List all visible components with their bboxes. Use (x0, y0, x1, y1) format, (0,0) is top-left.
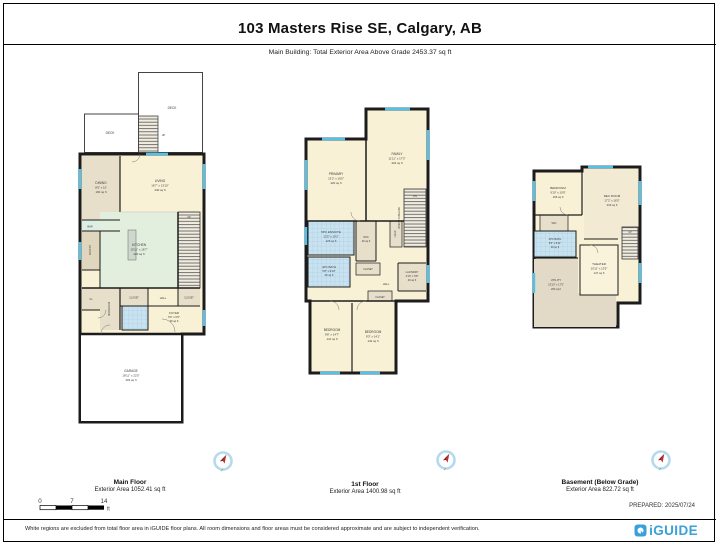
family-name: FAMILY (391, 152, 403, 156)
bath-area: 46 sq ft (325, 273, 334, 277)
deck-left-label: DECK (106, 131, 116, 135)
stairs-up-label: UP (628, 231, 632, 234)
kitchen-area: 220 sq ft (133, 252, 144, 256)
primary-name: PRIMARY (329, 172, 344, 176)
primary-dims: 13'2" x 16'5" (328, 177, 344, 181)
floor-name: Main Floor (40, 479, 220, 487)
prepared-date: PREPARED: 2025/07/24 (629, 503, 695, 509)
bedroom-b-area: 142 sq ft (367, 339, 378, 343)
floor-name: 1st Floor (275, 481, 455, 489)
open-to-below-label: OPEN TO BELOW (397, 207, 401, 229)
floorplan-1st-floor: PRIMARY 13'2" x 16'5" 220 sq ft FAMILY 1… (300, 105, 432, 412)
utility-name: UTILITY (551, 278, 562, 282)
wic-name: WIC (363, 235, 368, 239)
iguide-logo-icon (634, 524, 647, 537)
dining-dims: 8'6" x 10' (95, 186, 107, 190)
scale-tick-0: 0 (38, 498, 42, 505)
bedroom-area: 106 sq ft (553, 195, 564, 199)
stairs-dn-label: DN (413, 194, 417, 198)
laundry-area: 40 sq ft (408, 278, 417, 282)
scale-tick-7: 7 (70, 498, 74, 505)
bedroom-dims: 9'10" x 10'9" (550, 191, 565, 195)
linen-label: LINEN (394, 230, 397, 237)
page-subtitle: Main Building: Total Exterior Area Above… (0, 49, 720, 56)
deck-top-label: DECK (168, 106, 178, 110)
theater-name: THEATER (592, 262, 607, 266)
theater-dims: 10'11" x 13'5" (591, 267, 608, 271)
utility-area: 263 sq ft (551, 287, 561, 291)
primary-area: 220 sq ft (330, 181, 341, 185)
bedroom-a-dims: 9'8" x 14'7" (325, 333, 339, 337)
ensuite-name: 5PC ENSUITE (321, 230, 341, 234)
bath-area: 49 sq ft (551, 246, 560, 249)
iguide-logo-text: iGUIDE (649, 523, 698, 538)
bedroom-a-area: 141 sq ft (326, 337, 337, 341)
kitchen-name: KITCHEN (132, 243, 147, 247)
rec-name: REC ROOM (604, 194, 621, 198)
floor-area: Exterior Area 822.72 sq ft (510, 487, 690, 495)
iguide-logo: iGUIDE (634, 523, 698, 538)
living-area: 240 sq ft (154, 188, 165, 192)
foyer-name: FOYER (169, 311, 179, 315)
ensuite-area: 126 sq ft (326, 239, 337, 243)
closet-b-label: CLOSET (184, 297, 194, 300)
garage-area: 402 sq ft (125, 378, 136, 382)
closet-a-label: CLOSET (129, 297, 139, 300)
deck-top: DECK UP (139, 73, 203, 153)
caption-main-floor: Main Floor Exterior Area 1052.41 sq ft (40, 479, 220, 495)
laundry-dims: 4'10" x 5'8" (406, 274, 419, 278)
bath-name: 4PC BATH (549, 237, 562, 241)
bath-name: 4PC BATH (322, 265, 336, 269)
compass-icon (649, 448, 673, 472)
closet-b-label: CLOSET (375, 296, 385, 299)
wic-area: 49 sq ft (362, 239, 371, 243)
kitchen-dims: 15'11" x 16'7" (130, 248, 147, 252)
stairs-main (178, 212, 200, 288)
stairs-up-label: UP (187, 215, 191, 219)
page-title: 103 Masters Rise SE, Calgary, AB (0, 20, 720, 37)
garage-dims: 18'11" x 22'5" (122, 374, 139, 378)
floorplan-basement: BEDROOM 9'10" x 10'9" 106 sq ft REC ROOM… (528, 163, 652, 338)
ensuite-dims: 12'5" x 10'2" (323, 235, 338, 239)
theater-area: 147 sq ft (594, 271, 605, 275)
wic-label: WIC (551, 221, 556, 225)
deck-left: DECK (85, 114, 139, 153)
hall-label: HALL (383, 282, 390, 286)
bedroom-b-dims: 9'3" x 14'1" (366, 335, 380, 339)
room-bath-2pc (122, 306, 148, 330)
living-name: LIVING (155, 179, 166, 183)
floorplan-main-floor: DECK UP DECK (76, 64, 208, 426)
bedroom-b-name: BEDROOM (365, 330, 382, 334)
family-dims: 11'11" x 17'3" (388, 157, 405, 161)
rec-dims: 17'2" x 16'5" (604, 199, 619, 203)
scale-unit: ft (107, 507, 110, 513)
floorplan-page: 103 Masters Rise SE, Calgary, AB Main Bu… (0, 0, 720, 557)
family-area: 202 sq ft (391, 161, 402, 165)
foyer-area: 36 sq ft (170, 319, 179, 323)
dining-name: DINING (95, 181, 107, 185)
utility-dims: 23'10" x 17'5" (548, 283, 564, 287)
cl-label: CL (89, 297, 93, 301)
foyer-dims: 6'6" x 6'9" (168, 315, 180, 319)
compass-icon (211, 449, 235, 473)
floor-area: Exterior Area 1052.41 sq ft (40, 487, 220, 495)
floor-name: Basement (Below Grade) (510, 479, 690, 487)
compass-icon (434, 448, 458, 472)
pantry-label: PANTRY (88, 245, 92, 256)
living-dims: 16'7" x 13'10" (151, 184, 168, 188)
floor-area: Exterior Area 1400.98 sq ft (275, 489, 455, 497)
scale-bar: 0 7 14 ft (38, 496, 122, 516)
mudroom-label: MUDROOM (107, 302, 111, 316)
laundry-name: LAUNDRY (406, 270, 419, 274)
dining-area: 100 sq ft (95, 190, 106, 194)
bedroom-name: BEDROOM (550, 186, 566, 190)
caption-1st-floor: 1st Floor Exterior Area 1400.98 sq ft (275, 481, 455, 497)
bar-label: BAR (87, 225, 92, 229)
rec-area: 233 sq ft (607, 203, 618, 207)
garage-name: GARAGE (124, 369, 138, 373)
deck-stairs-up-label: UP (162, 133, 166, 137)
bath-dims: 5'6" x 8'11" (549, 242, 561, 245)
hall-label: HALL (160, 296, 167, 300)
bedroom-a-name: BEDROOM (324, 328, 341, 332)
disclaimer-text: White regions are excluded from total fl… (25, 526, 480, 532)
footer-divider (3, 519, 716, 520)
title-divider (3, 44, 716, 45)
caption-basement: Basement (Below Grade) Exterior Area 822… (510, 479, 690, 495)
bath-dims: 5'8" x 9'10" (322, 269, 335, 273)
scale-tick-14: 14 (101, 498, 108, 505)
closet-a-label: CLOSET (363, 268, 373, 271)
